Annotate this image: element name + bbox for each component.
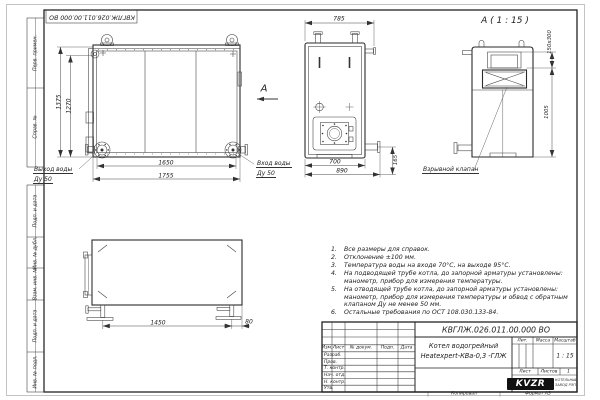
title-block-doc-number: КВГЛЖ.026.011.00.000 ВО <box>442 325 550 334</box>
note-item: 1. Все размеры для справок. <box>331 246 573 254</box>
side-dim-bottom-inner: 700 <box>329 158 340 165</box>
water-inlet-dn-label: Ду 50 <box>256 170 276 178</box>
product-title-line1: Котел водогрейный <box>429 342 498 350</box>
note-text: На отводящей трубе котла, до запорной ар… <box>344 286 573 309</box>
stamp-perv-primen: Перв. примен. <box>33 35 38 71</box>
note-number: 4. <box>331 270 344 285</box>
bottom-dim-leg-offset: 80 <box>245 318 253 325</box>
stamp-sprav-no: Справ. № <box>33 115 38 138</box>
company-line2: ЗАВОД РЭП <box>555 383 577 388</box>
note-number: 2. <box>331 254 344 262</box>
note-number: 6. <box>331 309 344 317</box>
company-line1: КОТЕЛЬНЫЙ <box>555 378 577 383</box>
drawing-linework: .c1{stroke:#2a2a2a;stroke-width:1.1;fill… <box>0 0 600 400</box>
water-inlet-label: Вход воды <box>256 160 292 168</box>
top-doc-number: КВГЛЖ.026.011.00.000 ВО <box>49 13 135 20</box>
water-outlet-dn-label: Ду 50 <box>33 176 53 184</box>
kvzr-logo: KVZR <box>507 378 554 391</box>
note-item: 5. На отводящей трубе котла, до запорной… <box>331 286 573 309</box>
engineering-drawing-page: .c1{stroke:#2a2a2a;stroke-width:1.1;fill… <box>0 0 600 400</box>
col-mass-label: Масса <box>536 338 550 343</box>
note-item: 3. Температура воды на входе 70°С, на вы… <box>331 262 573 270</box>
sig-row-razrab: Разраб. <box>324 353 342 358</box>
kvzr-logo-text: KVZR <box>516 379 545 389</box>
stamp-vzam-inv: Взам. инв. № <box>33 268 38 301</box>
sig-row-prov: Пров. <box>324 360 337 365</box>
note-text: На подводящей трубе котла, до запорной а… <box>344 270 573 285</box>
note-number: 1. <box>331 246 344 254</box>
company-name: КОТЕЛЬНЫЙ ЗАВОД РЭП <box>555 378 577 387</box>
sig-row-utv: Утв. <box>324 386 333 391</box>
bottom-dim-leg-span: 1450 <box>150 319 165 326</box>
note-item: 4. На подводящей трубе котла, до запорно… <box>331 270 573 285</box>
stamp-inv-podl: Инв. № подл. <box>33 355 38 388</box>
sheets-value: 1 <box>567 369 570 374</box>
detail-dim-height: 1005 <box>544 105 550 119</box>
front-dim-height-inner: 1270 <box>66 98 73 113</box>
bottom-view <box>84 240 251 329</box>
front-dim-width-inner: 1650 <box>158 159 173 166</box>
footer-copied-label: Копировал <box>451 392 477 397</box>
view-arrow-label: А <box>261 84 268 95</box>
note-number: 3. <box>331 262 344 270</box>
sig-row-nkontr: Н. контр. <box>324 380 346 385</box>
sig-col-doc: № докум. <box>350 346 372 351</box>
note-item: 6. Остальные требования по ОСТ 108.030.1… <box>331 309 573 317</box>
note-text: Остальные требования по ОСТ 108.030.133-… <box>344 309 573 317</box>
sig-col-podp: Подп. <box>381 346 395 351</box>
sig-row-tkontr: Т. контр. <box>324 366 345 371</box>
note-number: 5. <box>331 286 344 309</box>
detail-a-view <box>454 41 556 171</box>
side-dim-bottom-outer: 890 <box>336 167 347 174</box>
stamp-podp-data-1: Подп. и дата <box>33 195 38 228</box>
col-scale-label: Масштаб <box>554 338 575 343</box>
sig-col-list: Лист <box>333 346 344 351</box>
note-text: Отклонение ±100 мм. <box>344 254 573 262</box>
sheets-label: Листов <box>541 369 558 374</box>
front-dim-width-outer: 1755 <box>158 172 173 179</box>
scale-value: 1 : 15 <box>556 353 573 360</box>
detail-a-title: А ( 1 : 15 ) <box>481 16 529 26</box>
side-dim-top-width: 785 <box>333 16 344 23</box>
note-text: Все размеры для справок. <box>344 246 573 254</box>
sig-col-izm: Изм. <box>322 346 333 351</box>
note-text: Температура воды на входе 70°С, на выход… <box>344 262 573 270</box>
side-view <box>305 20 396 178</box>
explosion-valve-label: Взрывной клапан <box>422 166 479 174</box>
side-dim-flange-height: 165 <box>393 155 399 165</box>
product-title-line2: Heatexpert-КВа-0,3 -ГЛЖ <box>421 352 507 360</box>
note-item: 2. Отклонение ±100 мм. <box>331 254 573 262</box>
col-lit-label: Лит. <box>517 338 527 343</box>
detail-dim-valve: 150x300 <box>547 30 553 54</box>
sig-col-data: Дата <box>401 346 413 351</box>
sig-row-nachotd: Нач. отд. <box>324 373 346 378</box>
front-dim-height-outer: 1375 <box>55 94 62 109</box>
stamp-podp-data-2: Подп. и дата <box>33 310 38 343</box>
technical-notes: 1. Все размеры для справок. 2. Отклонени… <box>331 246 573 318</box>
sheet-label: Лист <box>519 369 530 374</box>
stamp-inv-dubl: Инв. № дубл. <box>33 236 38 269</box>
water-outlet-label: Выход воды <box>33 166 73 174</box>
footer-format-label: Формат А3 <box>525 392 551 397</box>
